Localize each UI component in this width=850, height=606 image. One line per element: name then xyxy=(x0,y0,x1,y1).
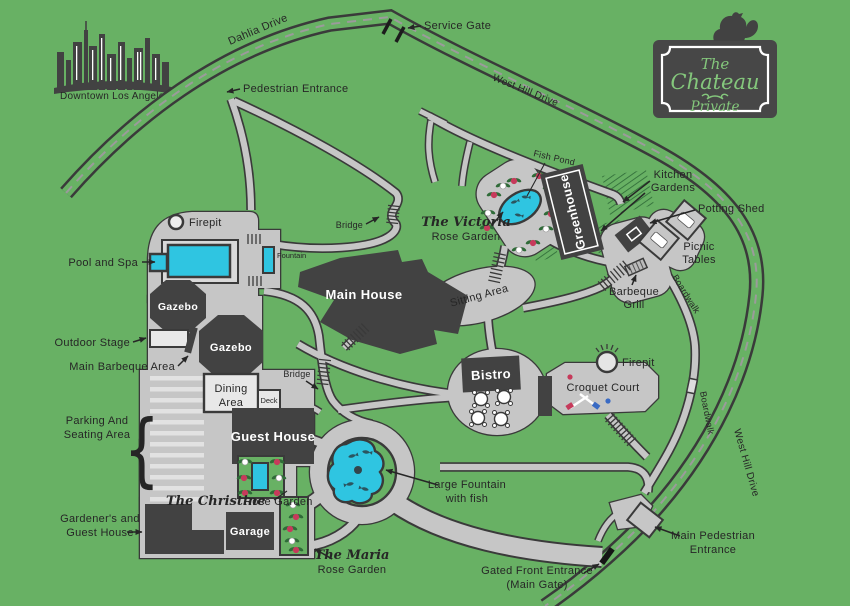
sign-line3: Private xyxy=(690,99,740,115)
gated-front-label-1: Gated Front Entrance xyxy=(481,565,593,577)
picnic-tables-label-2: Tables xyxy=(682,254,716,266)
gazebo-1: Gazebo xyxy=(150,280,206,332)
fountain-label: Fountain xyxy=(277,251,306,260)
kitchen-gardens-label-2: Gardens xyxy=(651,182,695,194)
bistro-label: Bistro xyxy=(471,366,512,383)
victoria-label-script: The Victoria xyxy=(421,215,511,230)
parking-label-1: Parking And xyxy=(66,415,129,427)
main-barbeque-label: Main Barbeque Area xyxy=(69,361,175,373)
firepit-right-label: Firepit xyxy=(622,357,655,369)
dining-area-label-1: Dining xyxy=(215,383,248,395)
small-fountain xyxy=(263,247,274,273)
gazebo-2: Gazebo xyxy=(199,315,263,379)
garage-label: Garage xyxy=(230,526,270,538)
croquet-court-label: Croquet Court xyxy=(567,382,640,394)
chateau-sign: The Chateau Private xyxy=(653,40,777,118)
bridge-lower-label: Bridge xyxy=(283,369,310,379)
outdoor-stage-label: Outdoor Stage xyxy=(55,337,130,349)
firepit-top-label: Firepit xyxy=(189,217,222,229)
main-pedestrian-label-1: Main Pedestrian xyxy=(671,530,755,542)
large-fountain-label-2: with fish xyxy=(445,493,488,505)
sign-line2: Chateau xyxy=(670,70,759,94)
dining-area-label-2: Area xyxy=(219,397,244,409)
pool-and-spa-label: Pool and Spa xyxy=(68,257,138,269)
large-fountain xyxy=(328,439,384,503)
parking-brace: { xyxy=(124,404,160,497)
gardeners-label-1: Gardener's and xyxy=(60,513,140,525)
christine-rose-garden xyxy=(236,456,287,498)
pool-and-spa xyxy=(150,240,238,283)
kitchen-gardens-label-1: Kitchen xyxy=(654,169,693,181)
main-house-label: Main House xyxy=(326,287,403,302)
gardeners-label-2: Guest House xyxy=(66,527,134,539)
barbeque-grill-label-1: Barbeque xyxy=(609,286,659,298)
pedestrian-entrance-label: Pedestrian Entrance xyxy=(243,83,348,95)
maria-label-rest: Rose Garden xyxy=(318,564,387,576)
main-pedestrian-label-2: Entrance xyxy=(690,544,736,556)
guest-house-label: Guest House xyxy=(231,429,316,444)
potting-shed-label: Potting Shed xyxy=(698,203,765,215)
christine-label-rest: Rose Garden xyxy=(244,496,313,508)
gated-front-label-2: (Main Gate) xyxy=(506,579,567,591)
firepit-top-icon xyxy=(169,215,183,229)
barbeque-grill-label-2: Grill xyxy=(623,299,644,311)
garage: Garage xyxy=(226,512,274,550)
service-gate-label: Service Gate xyxy=(424,20,491,32)
outdoor-stage xyxy=(150,330,188,347)
victoria-label-rest: Rose Garden xyxy=(432,231,501,243)
estate-map-canvas: Downtown Los Angeles xyxy=(0,0,850,606)
gazebo-2-label: Gazebo xyxy=(210,342,252,354)
bridge-upper-label: Bridge xyxy=(336,220,363,230)
deck-label: Deck xyxy=(260,396,277,405)
picnic-tables-label-1: Picnic xyxy=(683,241,714,253)
parking-label-2: Seating Area xyxy=(64,429,131,441)
large-fountain-label-1: Large Fountain xyxy=(428,479,506,491)
gazebo-1-label: Gazebo xyxy=(158,301,198,313)
estate-map: Downtown Los Angeles xyxy=(0,0,850,606)
